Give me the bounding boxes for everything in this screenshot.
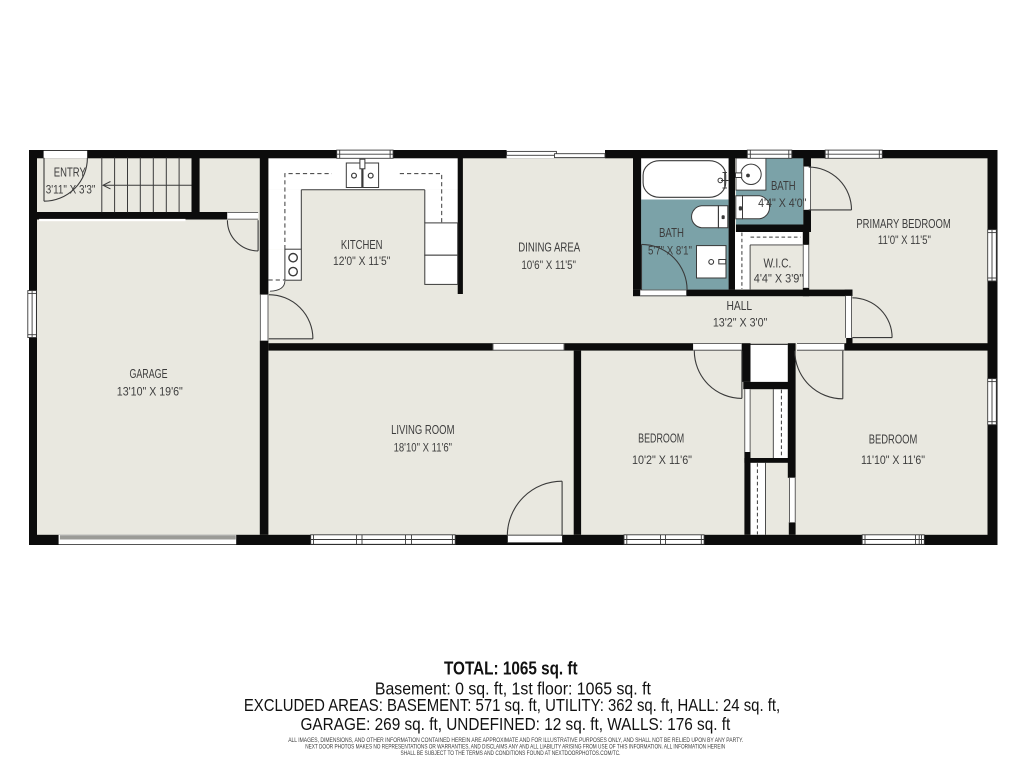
svg-text:PRIMARY BEDROOM: PRIMARY BEDROOM [856, 216, 951, 231]
svg-text:BATH: BATH [771, 178, 796, 193]
svg-text:DINING AREA: DINING AREA [518, 240, 580, 255]
svg-text:12'0" X 11'5": 12'0" X 11'5" [333, 254, 390, 268]
svg-text:GARAGE: 269 sq. ft, UNDEFINED:: GARAGE: 269 sq. ft, UNDEFINED: 12 sq. ft… [301, 714, 731, 734]
svg-text:LIVING ROOM: LIVING ROOM [391, 422, 454, 437]
svg-text:5'7" X 8'1": 5'7" X 8'1" [648, 243, 692, 257]
svg-text:ENTRY: ENTRY [54, 165, 86, 180]
svg-text:11'10" X 11'6": 11'10" X 11'6" [861, 453, 925, 467]
svg-text:4'4" X 3'9": 4'4" X 3'9" [754, 271, 803, 285]
svg-text:11'0" X 11'5": 11'0" X 11'5" [878, 233, 931, 247]
svg-text:BATH: BATH [659, 225, 684, 240]
svg-text:TOTAL: 1065 sq. ft: TOTAL: 1065 sq. ft [444, 657, 578, 678]
svg-text:SHALL BE SUBJECT TO THE TERMS: SHALL BE SUBJECT TO THE TERMS AND CONDIT… [401, 750, 621, 757]
svg-text:13'10" X 19'6": 13'10" X 19'6" [117, 385, 183, 399]
svg-text:KITCHEN: KITCHEN [341, 237, 383, 252]
svg-text:HALL: HALL [726, 298, 752, 313]
svg-text:13'2" X 3'0": 13'2" X 3'0" [713, 316, 768, 330]
svg-text:10'6" X 11'5": 10'6" X 11'5" [521, 258, 576, 272]
svg-text:4'4" X 4'0": 4'4" X 4'0" [758, 196, 806, 210]
svg-text:EXCLUDED AREAS: BASEMENT: 571: EXCLUDED AREAS: BASEMENT: 571 sq. ft, UT… [244, 695, 780, 715]
svg-text:3'11" X 3'3": 3'11" X 3'3" [46, 183, 96, 197]
svg-text:GARAGE: GARAGE [129, 366, 167, 381]
svg-text:W.I.C.: W.I.C. [763, 255, 791, 270]
svg-text:18'10" X 11'6": 18'10" X 11'6" [394, 441, 452, 455]
svg-text:BEDROOM: BEDROOM [638, 431, 684, 446]
svg-text:BEDROOM: BEDROOM [869, 432, 918, 447]
svg-text:10'2" X 11'6": 10'2" X 11'6" [632, 453, 692, 467]
